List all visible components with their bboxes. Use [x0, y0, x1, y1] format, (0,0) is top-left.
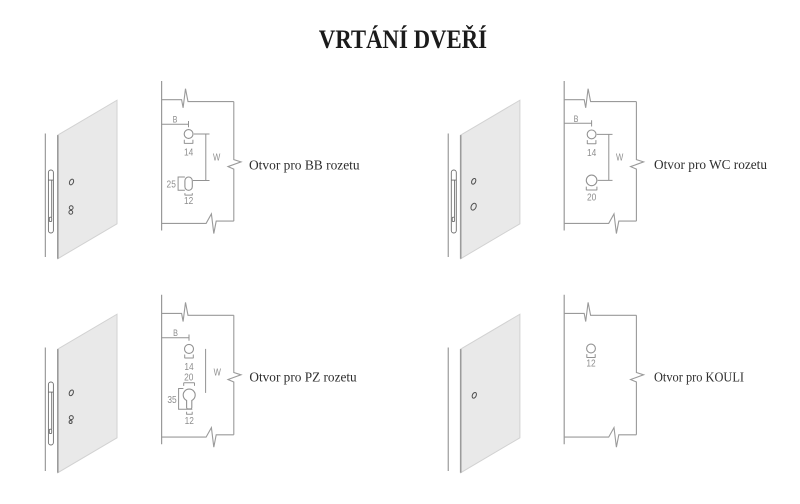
svg-text:Otvor pro PZ rozetu: Otvor pro PZ rozetu [249, 371, 356, 386]
svg-text:35: 35 [167, 394, 176, 406]
svg-text:12: 12 [586, 358, 595, 370]
svg-text:W: W [616, 152, 623, 164]
svg-text:B: B [173, 114, 178, 125]
svg-text:B: B [173, 328, 178, 339]
svg-text:Otvor pro BB rozetu: Otvor pro BB rozetu [249, 158, 360, 173]
svg-text:W: W [213, 152, 220, 164]
svg-text:12: 12 [184, 195, 193, 207]
svg-text:25: 25 [167, 179, 176, 191]
svg-text:14: 14 [184, 146, 193, 158]
svg-text:B: B [574, 114, 579, 125]
svg-text:14: 14 [587, 147, 596, 159]
svg-text:W: W [214, 366, 221, 378]
svg-text:Otvor pro WC rozetu: Otvor pro WC rozetu [654, 158, 767, 173]
svg-text:20: 20 [587, 192, 596, 204]
svg-text:20: 20 [184, 372, 193, 384]
svg-text:12: 12 [185, 415, 194, 427]
svg-text:Otvor pro KOULI: Otvor pro KOULI [654, 371, 744, 386]
svg-text:VRTÁNÍ DVEŘÍ: VRTÁNÍ DVEŘÍ [319, 24, 487, 54]
